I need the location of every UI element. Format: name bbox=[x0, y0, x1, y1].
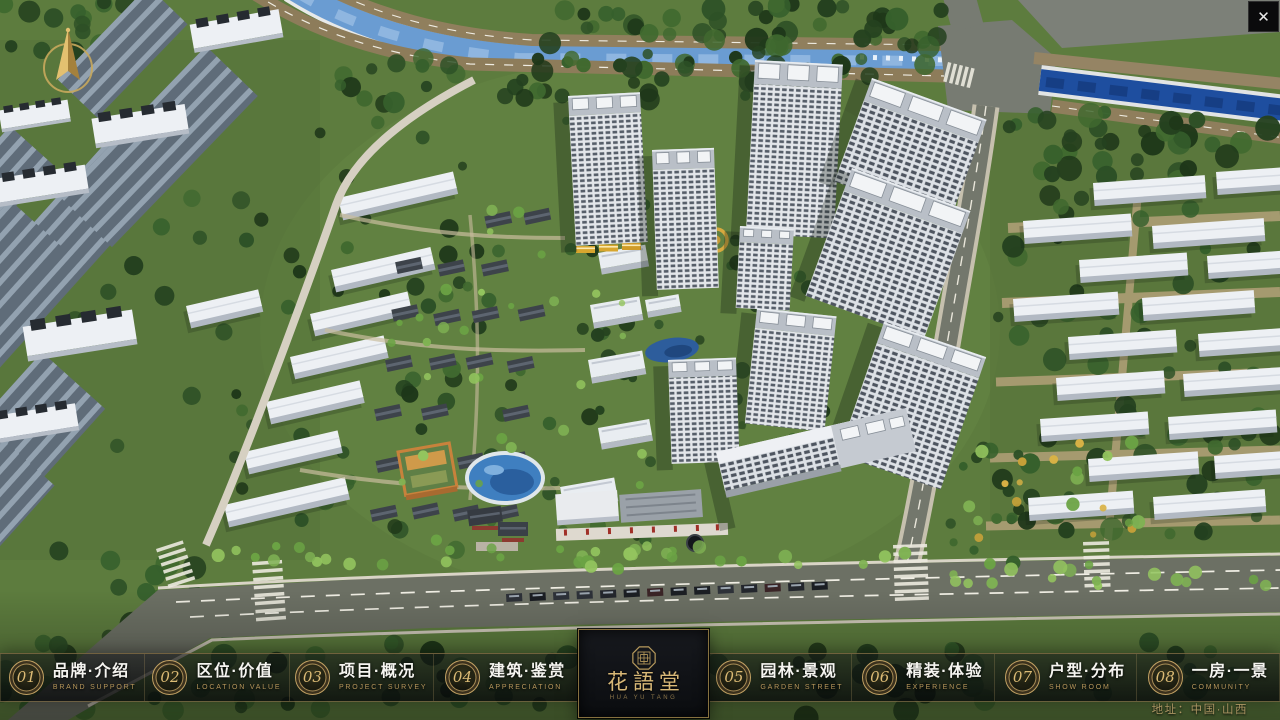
nav-item-title: 精装·体验 bbox=[906, 664, 983, 681]
nav-item-labels: 精装·体验 EXPERIENCE bbox=[906, 664, 983, 690]
nav-item-subtitle: COMMUNITY bbox=[1192, 684, 1251, 691]
masterplan-render-viewport[interactable] bbox=[0, 0, 1280, 720]
nav-item-number: 01 bbox=[17, 668, 36, 686]
nav-item-number: 07 bbox=[1013, 668, 1032, 686]
nav-item-number-badge: 07 bbox=[1005, 660, 1040, 695]
nav-item-title: 户型·分布 bbox=[1049, 664, 1126, 681]
project-logo-subtitle: HUA YU TANG bbox=[610, 695, 678, 701]
nav-item-08[interactable]: 08 一房·一景 COMMUNITY bbox=[1136, 654, 1280, 701]
compass-icon bbox=[36, 24, 100, 100]
nav-item-05[interactable]: 05 园林·景观 GARDEN STREET bbox=[708, 654, 851, 701]
nav-item-number: 04 bbox=[453, 668, 472, 686]
nav-item-04[interactable]: 04 建筑·鉴赏 APPRECIATION bbox=[433, 654, 577, 701]
nav-item-number: 02 bbox=[160, 668, 179, 686]
nav-group-right: 05 园林·景观 GARDEN STREET 06 精装·体验 EXPERIEN… bbox=[708, 654, 1280, 701]
nav-item-02[interactable]: 02 区位·价值 LOCATION VALUE bbox=[144, 654, 288, 701]
nav-item-subtitle: PROJECT SURVEY bbox=[339, 684, 427, 691]
nav-item-labels: 建筑·鉴赏 APPRECIATION bbox=[489, 664, 566, 690]
nav-item-title: 建筑·鉴赏 bbox=[489, 664, 566, 681]
nav-item-title: 项目·概况 bbox=[339, 664, 416, 681]
nav-item-07[interactable]: 07 户型·分布 SHOW ROOM bbox=[994, 654, 1137, 701]
close-icon: ✕ bbox=[1257, 8, 1270, 26]
pond bbox=[465, 451, 545, 505]
project-address: 地址：中国·山西 bbox=[1152, 701, 1248, 717]
nav-item-01[interactable]: 01 品牌·介绍 BRAND SUPPORT bbox=[0, 654, 144, 701]
nav-item-number-badge: 03 bbox=[295, 660, 330, 695]
nav-item-number-badge: 01 bbox=[9, 660, 44, 695]
nav-item-number: 03 bbox=[303, 668, 322, 686]
nav-item-number: 05 bbox=[724, 668, 743, 686]
nav-item-title: 品牌·介绍 bbox=[53, 664, 130, 681]
project-logo-panel[interactable]: 花語堂 HUA YU TANG bbox=[578, 629, 709, 718]
nav-item-subtitle: SHOW ROOM bbox=[1049, 684, 1111, 691]
nav-item-labels: 一房·一景 COMMUNITY bbox=[1192, 664, 1269, 690]
nav-item-number-badge: 02 bbox=[152, 660, 187, 695]
project-logo-title: 花語堂 bbox=[602, 672, 685, 693]
nav-item-subtitle: LOCATION VALUE bbox=[196, 684, 281, 691]
nav-item-number-badge: 04 bbox=[445, 660, 480, 695]
nav-item-number-badge: 06 bbox=[862, 660, 897, 695]
nav-item-title: 园林·景观 bbox=[760, 664, 837, 681]
nav-item-number: 06 bbox=[870, 668, 889, 686]
nav-item-labels: 区位·价值 LOCATION VALUE bbox=[196, 664, 281, 690]
close-button[interactable]: ✕ bbox=[1248, 1, 1279, 32]
amenity-building bbox=[398, 443, 458, 500]
nav-item-labels: 项目·概况 PROJECT SURVEY bbox=[339, 664, 427, 690]
nav-item-labels: 园林·景观 GARDEN STREET bbox=[760, 664, 843, 690]
nav-item-number-badge: 05 bbox=[716, 660, 751, 695]
nav-item-03[interactable]: 03 项目·概况 PROJECT SURVEY bbox=[289, 654, 433, 701]
nav-item-labels: 品牌·介绍 BRAND SUPPORT bbox=[53, 664, 137, 690]
nav-item-06[interactable]: 06 精装·体验 EXPERIENCE bbox=[851, 654, 994, 701]
nav-item-subtitle: APPRECIATION bbox=[489, 684, 562, 691]
nav-group-left: 01 品牌·介绍 BRAND SUPPORT 02 区位·价值 LOCATION… bbox=[0, 654, 577, 701]
nav-item-number: 08 bbox=[1156, 668, 1175, 686]
nav-item-labels: 户型·分布 SHOW ROOM bbox=[1049, 664, 1126, 690]
nav-item-subtitle: GARDEN STREET bbox=[760, 684, 843, 691]
nav-item-title: 区位·价值 bbox=[196, 664, 273, 681]
nav-item-number-badge: 08 bbox=[1148, 660, 1183, 695]
nav-item-subtitle: EXPERIENCE bbox=[906, 684, 969, 691]
nav-item-subtitle: BRAND SUPPORT bbox=[53, 684, 137, 691]
sales-app-window: ✕ 01 品牌·介绍 BRAND SUPPORT 02 区位·价值 LOCATI… bbox=[0, 0, 1280, 720]
nav-item-title: 一房·一景 bbox=[1192, 664, 1269, 681]
seal-emblem-icon bbox=[632, 646, 656, 670]
